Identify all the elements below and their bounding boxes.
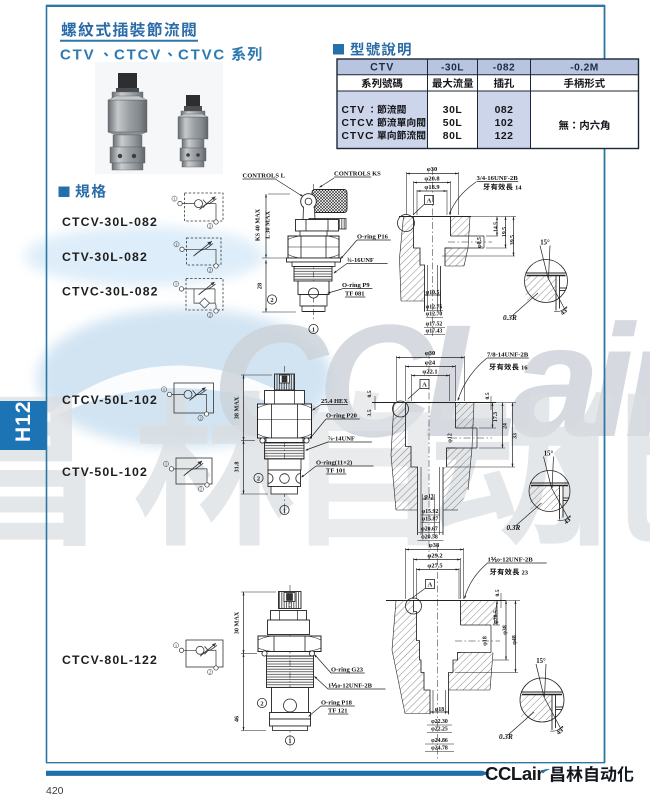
- svg-text:80L: 80L: [443, 131, 463, 142]
- svg-text:7/8-14UNF-2B: 7/8-14UNF-2B: [487, 352, 529, 359]
- svg-text:φ15.92: φ15.92: [422, 509, 439, 515]
- svg-text:2: 2: [200, 487, 202, 492]
- svg-text:1: 1: [175, 643, 177, 648]
- svg-text:φ20.58: φ20.58: [421, 535, 438, 541]
- svg-text:φ22.30: φ22.30: [431, 719, 448, 725]
- svg-text:1: 1: [165, 462, 167, 467]
- svg-text:φ29.2: φ29.2: [427, 553, 442, 560]
- svg-text:φ24.78: φ24.78: [431, 746, 448, 752]
- svg-text:0.5: 0.5: [367, 390, 373, 397]
- svg-text:17.3: 17.3: [493, 412, 499, 422]
- svg-text:1: 1: [283, 507, 286, 514]
- svg-text:φ30: φ30: [425, 350, 435, 357]
- svg-text:CTV: CTV: [342, 105, 366, 116]
- svg-text:0.3R: 0.3R: [499, 733, 513, 741]
- svg-text:φ27.5: φ27.5: [427, 563, 442, 570]
- svg-text:23: 23: [522, 570, 529, 577]
- svg-text:33: 33: [513, 433, 519, 439]
- svg-text:φ8.5: φ8.5: [477, 237, 483, 248]
- svg-text:420: 420: [46, 785, 64, 797]
- svg-text:O-ring P9: O-ring P9: [342, 282, 370, 289]
- svg-text:CTV-30L-082: CTV-30L-082: [62, 250, 148, 264]
- svg-text:-30L: -30L: [441, 63, 464, 74]
- svg-text:CTV: CTV: [60, 47, 95, 64]
- svg-text:φ24.86: φ24.86: [431, 738, 448, 744]
- svg-text:KS 40 MAX: KS 40 MAX: [255, 208, 262, 241]
- svg-text:φ12.70: φ12.70: [426, 312, 443, 318]
- svg-text:15°: 15°: [540, 240, 550, 247]
- svg-text:φ12: φ12: [448, 433, 454, 443]
- svg-text:φ38: φ38: [503, 625, 509, 635]
- svg-text:φ17.43: φ17.43: [426, 329, 443, 335]
- svg-text:A: A: [428, 582, 433, 589]
- svg-text:O-ring G23: O-ring G23: [331, 667, 364, 674]
- svg-text:φ13: φ13: [424, 494, 434, 500]
- svg-text:H12: H12: [12, 400, 35, 442]
- svg-text:φ48: φ48: [512, 635, 518, 645]
- svg-text:082: 082: [495, 105, 514, 116]
- svg-text:15°: 15°: [536, 658, 546, 665]
- svg-text:CCLair: CCLair: [485, 763, 543, 784]
- svg-text:45°: 45°: [555, 725, 567, 737]
- svg-text:14: 14: [515, 185, 522, 192]
- svg-text:φ22.1: φ22.1: [422, 369, 437, 376]
- svg-text:1: 1: [175, 282, 177, 287]
- svg-text:50L: 50L: [443, 118, 463, 129]
- svg-text:φ15.87: φ15.87: [422, 517, 439, 523]
- svg-text:2: 2: [257, 475, 260, 482]
- svg-text:0.3R: 0.3R: [503, 314, 517, 322]
- svg-text:CTVC-30L-082: CTVC-30L-082: [62, 285, 159, 299]
- svg-text:2: 2: [270, 297, 273, 304]
- svg-text:46: 46: [234, 716, 241, 722]
- svg-text:31.8: 31.8: [234, 462, 241, 473]
- svg-text:38 MAX: 38 MAX: [234, 396, 241, 419]
- svg-text:φ30: φ30: [427, 166, 437, 173]
- svg-text:φ20.67: φ20.67: [421, 527, 438, 533]
- svg-text:24: 24: [503, 423, 509, 429]
- svg-text:CONTROLS L: CONTROLS L: [243, 173, 286, 180]
- svg-text:φ22.25: φ22.25: [431, 727, 448, 733]
- svg-text:φ12.75: φ12.75: [426, 305, 443, 311]
- svg-text:102: 102: [495, 118, 514, 129]
- svg-text:1⅒-12UNF-2B: 1⅒-12UNF-2B: [488, 556, 534, 564]
- svg-text:L 30 MAX: L 30 MAX: [265, 211, 272, 239]
- svg-text:O-ring(11×2): O-ring(11×2): [316, 460, 352, 467]
- svg-text:1⅒-12UNF-2B: 1⅒-12UNF-2B: [328, 682, 373, 690]
- svg-text:φ20.8: φ20.8: [424, 176, 439, 183]
- svg-text:-082: -082: [493, 63, 515, 74]
- svg-text:2: 2: [209, 313, 211, 318]
- svg-text:CTCV: CTCV: [114, 47, 162, 64]
- svg-text:CTV-50L-102: CTV-50L-102: [62, 465, 148, 479]
- svg-text:CTV: CTV: [370, 62, 394, 74]
- svg-text:28: 28: [257, 283, 264, 289]
- svg-text:φ24: φ24: [425, 360, 436, 367]
- svg-text:O-ring P16: O-ring P16: [357, 234, 389, 241]
- svg-text:¾-16UNF: ¾-16UNF: [347, 257, 374, 264]
- svg-text:φ18: φ18: [435, 707, 445, 713]
- svg-text:A: A: [422, 382, 427, 389]
- svg-text:1: 1: [288, 738, 291, 745]
- svg-text:CTCV: CTCV: [342, 118, 374, 129]
- svg-text:CTVC: CTVC: [178, 47, 226, 64]
- svg-text:2: 2: [199, 416, 201, 421]
- svg-text:TF 101: TF 101: [326, 468, 345, 475]
- svg-text:15°: 15°: [544, 451, 554, 458]
- svg-text:TF 121: TF 121: [328, 708, 347, 715]
- svg-text:CTCV-80L-122: CTCV-80L-122: [62, 653, 158, 667]
- svg-text:3/4-16UNF-2B: 3/4-16UNF-2B: [477, 175, 519, 182]
- svg-text:φ17.52: φ17.52: [426, 322, 443, 328]
- svg-text:2: 2: [209, 268, 211, 273]
- svg-text:1: 1: [163, 387, 165, 392]
- svg-text:0.3R: 0.3R: [507, 524, 521, 532]
- svg-text:19.5: 19.5: [502, 227, 508, 237]
- svg-text:3.5: 3.5: [367, 409, 373, 416]
- svg-text:CONTROLS KS: CONTROLS KS: [334, 171, 381, 178]
- svg-text:O-ring P20: O-ring P20: [326, 413, 357, 420]
- svg-text:φ10.5: φ10.5: [426, 290, 440, 296]
- svg-text:0.5: 0.5: [495, 589, 501, 596]
- svg-text:14.5: 14.5: [494, 222, 500, 232]
- svg-text:φ18: φ18: [483, 636, 489, 646]
- svg-text:0.5: 0.5: [485, 392, 491, 399]
- svg-text:φ18.9: φ18.9: [424, 184, 439, 191]
- svg-text:1: 1: [312, 326, 315, 333]
- svg-text:CTCV-30L-082: CTCV-30L-082: [62, 215, 158, 229]
- svg-text:O-ring P18: O-ring P18: [321, 700, 353, 707]
- svg-text:TF 081: TF 081: [345, 291, 364, 298]
- svg-text:2: 2: [260, 700, 263, 707]
- svg-text:CTCV-50L-102: CTCV-50L-102: [62, 393, 158, 407]
- svg-text:2: 2: [209, 670, 211, 675]
- svg-text:25.4 HEX: 25.4 HEX: [321, 398, 348, 405]
- svg-text:φ28.5: φ28.5: [494, 610, 500, 624]
- svg-text:-0.2M: -0.2M: [570, 63, 599, 74]
- svg-text:1: 1: [173, 196, 175, 201]
- svg-text:2: 2: [209, 224, 211, 229]
- svg-text:30 MAX: 30 MAX: [234, 611, 241, 634]
- svg-text:30L: 30L: [443, 105, 463, 116]
- svg-text:16: 16: [521, 365, 528, 372]
- svg-text:⅞-14UNF: ⅞-14UNF: [328, 436, 355, 443]
- svg-text:A: A: [427, 198, 432, 205]
- svg-text:1: 1: [175, 242, 177, 247]
- svg-text:CTVC: CTVC: [342, 131, 374, 142]
- svg-text:122: 122: [495, 131, 514, 142]
- svg-text:39.5: 39.5: [510, 235, 516, 245]
